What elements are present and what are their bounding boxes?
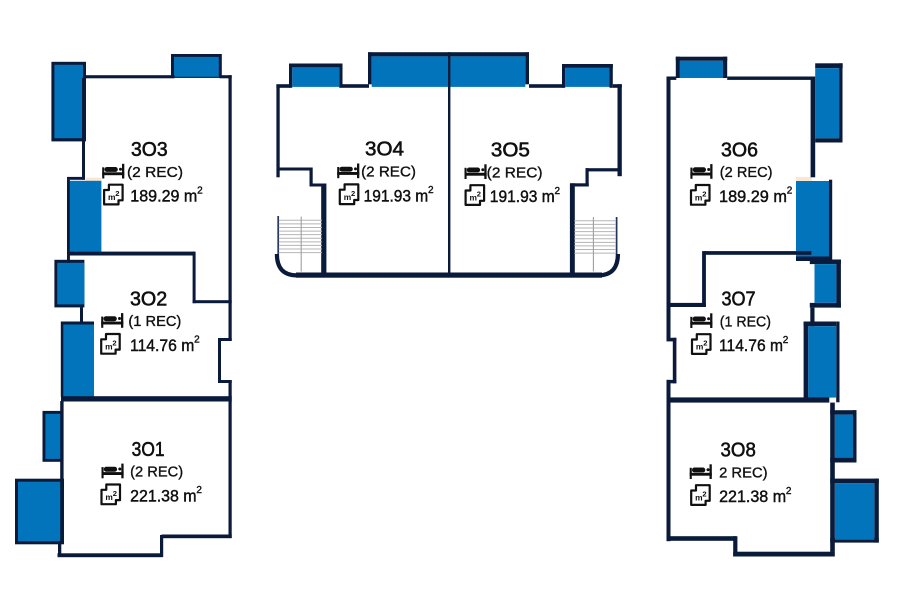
svg-text:(2 REC): (2 REC) (130, 464, 183, 481)
svg-text:191.93 m: 191.93 m (364, 186, 429, 205)
svg-text:3O5: 3O5 (491, 139, 530, 162)
svg-text:2: 2 (197, 185, 203, 196)
svg-text:114.76 m: 114.76 m (130, 336, 194, 355)
svg-text:(2 REC): (2 REC) (127, 164, 183, 181)
svg-text:3O1: 3O1 (132, 438, 165, 461)
svg-text:191.93 m: 191.93 m (490, 187, 555, 206)
svg-text:(2 REC): (2 REC) (487, 164, 543, 181)
svg-text:(2 REC): (2 REC) (720, 164, 773, 181)
svg-text:(1 REC): (1 REC) (720, 313, 771, 330)
svg-text:(1 REC): (1 REC) (128, 313, 181, 330)
svg-text:(2 REC): (2 REC) (361, 164, 416, 181)
svg-text:3O7: 3O7 (721, 288, 755, 311)
svg-text:3O6: 3O6 (721, 138, 758, 161)
svg-text:2 REC): 2 REC) (719, 464, 768, 481)
svg-text:114.76 m: 114.76 m (719, 336, 783, 355)
svg-text:2: 2 (555, 186, 561, 197)
svg-text:3O4: 3O4 (365, 138, 404, 161)
svg-text:3O2: 3O2 (130, 287, 167, 310)
svg-text:2: 2 (428, 185, 434, 196)
svg-text:3O3: 3O3 (131, 138, 168, 161)
svg-text:2: 2 (196, 485, 202, 496)
svg-text:189.29 m: 189.29 m (719, 187, 787, 206)
svg-text:2: 2 (783, 335, 789, 346)
svg-text:2: 2 (786, 486, 792, 497)
svg-text:221.38 m: 221.38 m (719, 487, 786, 506)
svg-text:2: 2 (787, 186, 793, 197)
svg-text:3O8: 3O8 (721, 439, 756, 462)
svg-text:2: 2 (194, 335, 200, 346)
svg-text:189.29 m: 189.29 m (130, 187, 197, 206)
svg-text:221.38 m: 221.38 m (130, 487, 197, 506)
